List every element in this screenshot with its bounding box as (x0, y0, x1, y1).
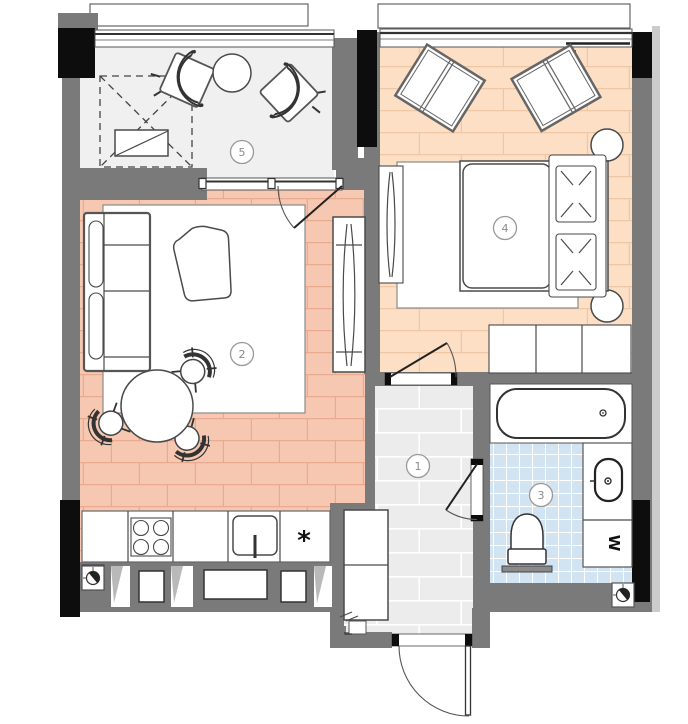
balcony-railing (90, 4, 308, 26)
svg-text:4: 4 (502, 222, 509, 235)
bathroom-vent (612, 583, 634, 607)
svg-text:5: 5 (239, 146, 246, 159)
room-number-balcony: 5 (231, 141, 254, 164)
svg-text:2: 2 (239, 348, 246, 361)
svg-text:3: 3 (538, 489, 545, 502)
bed (460, 155, 608, 297)
kitchen-star-label: * (297, 526, 311, 556)
stove-burners (131, 518, 171, 556)
svg-text:1: 1 (415, 460, 422, 473)
bedroom-side-cabinet (379, 166, 403, 283)
bed-pillow-bottom (556, 234, 596, 290)
room-number-living: 2 (231, 343, 254, 366)
room-number-hallway: 1 (407, 455, 430, 478)
entrance-door (392, 634, 472, 716)
bathroom-counter: W (583, 443, 632, 567)
living-balcony-glazing (199, 178, 343, 190)
dining-table (121, 370, 193, 442)
living-wardrobe (333, 217, 365, 372)
room-number-bathroom: 3 (530, 484, 553, 507)
sofa (84, 213, 150, 371)
floor-plan: * (0, 0, 688, 720)
hallway-cabinet (340, 510, 388, 634)
outer-wall-face (652, 26, 660, 612)
bedroom-balcony-railing (378, 4, 630, 28)
floor-plan-page: * (0, 0, 688, 720)
kitchen-sink (233, 516, 277, 558)
bedroom-wardrobe (489, 325, 631, 373)
bed-pillow-top (556, 166, 596, 222)
balcony-window (95, 30, 334, 47)
bathtub (490, 384, 632, 443)
kitchen-counter: * (82, 511, 330, 562)
washer-label: W (605, 535, 623, 552)
room-number-bedroom: 4 (494, 217, 517, 240)
balcony-table (213, 54, 251, 92)
